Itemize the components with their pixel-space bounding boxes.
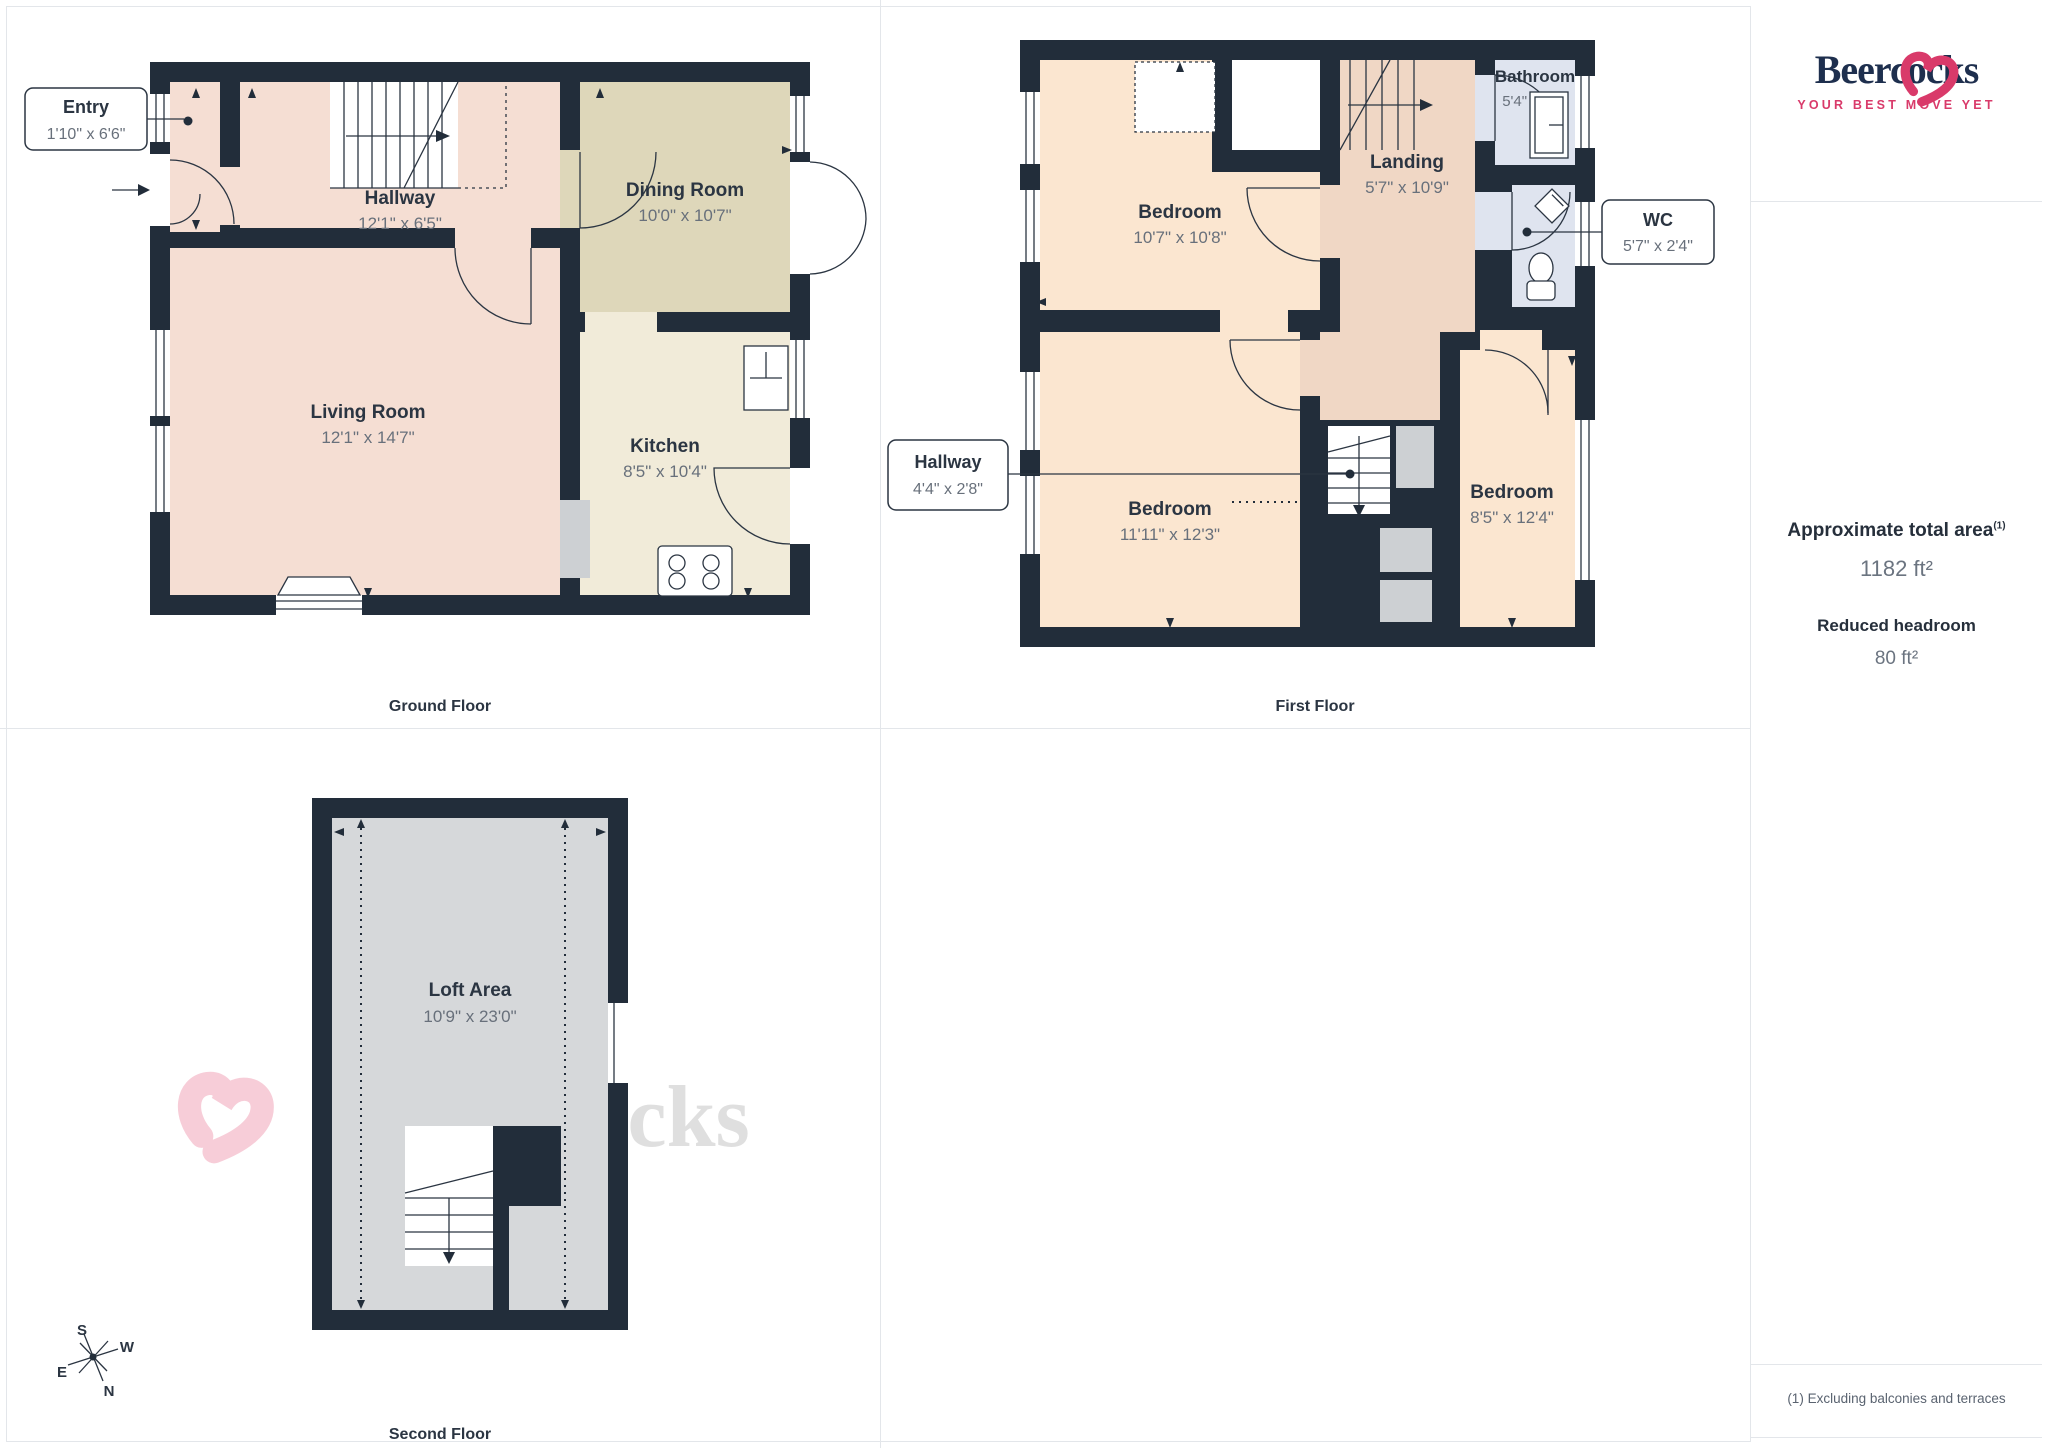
grid-divider-vertical — [880, 0, 881, 1448]
room-landing-dims: 5'7" x 10'9" — [1365, 178, 1449, 197]
reduced-headroom-label: Reduced headroom — [1751, 616, 2042, 636]
total-area-label: Approximate total area(1) — [1751, 520, 2042, 542]
callout-entry-label: Entry — [63, 97, 109, 117]
grid-divider-horizontal — [0, 728, 1750, 729]
wardrobe-dashed — [1135, 62, 1215, 132]
callout-wc-label: WC — [1643, 210, 1673, 230]
room-loft-name: Loft Area — [429, 980, 512, 1001]
first-floor-plan: Beercocks Bedroom 10'7" x 10'8" Landing … — [880, 0, 1750, 728]
caption-second-floor: Second Floor — [0, 1426, 880, 1444]
area-summary: Approximate total area(1) 1182 ft² Reduc… — [1751, 520, 2042, 1365]
second-floor-plan: Beercocks Loft Area 10'9" x 23'0" — [0, 728, 880, 1448]
room-hallway-dims: 12'1" x 6'5" — [358, 214, 442, 233]
room-bedroom3: Bedroom 8'5" x 12'4" — [1460, 330, 1575, 627]
room-bedroom2-name: Bedroom — [1128, 499, 1211, 520]
french-doors-dining — [790, 162, 866, 274]
sink-kitchen — [744, 346, 788, 410]
compass-e: E — [57, 1364, 67, 1381]
room-landing-name: Landing — [1370, 152, 1444, 173]
reduced-headroom-value: 80 ft² — [1751, 648, 2042, 670]
room-living-dims: 12'1" x 14'7" — [321, 428, 414, 447]
callout-hallway-dims: 4'4" x 2'8" — [913, 481, 983, 498]
exclusion-note: (1) Excluding balconies and terraces — [1751, 1365, 2042, 1438]
callout-entry-dims: 1'10" x 6'6" — [47, 126, 126, 143]
room-kitchen-dims: 8'5" x 10'4" — [623, 462, 707, 481]
total-area-note: (1) — [1993, 521, 2005, 532]
callout-hallway-label: Hallway — [914, 452, 981, 472]
compass: S W E N — [57, 1322, 135, 1400]
caption-first-floor: First Floor — [880, 698, 1750, 716]
room-bedroom1-name: Bedroom — [1138, 202, 1221, 223]
room-bedroom2: Bedroom 11'11" x 12'3" — [1040, 310, 1300, 627]
callout-wc-dims: 5'7" x 2'4" — [1623, 238, 1693, 255]
room-bedroom1-dims: 10'7" x 10'8" — [1133, 228, 1226, 247]
room-dining-name: Dining Room — [626, 180, 744, 201]
room-living: Living Room 12'1" x 14'7" — [170, 228, 560, 595]
ground-floor-plan: Beercocks Hallway 12'1" x 6'5" Dining Ro… — [0, 0, 880, 728]
compass-s: S — [77, 1322, 87, 1339]
caption-ground-floor: Ground Floor — [0, 698, 880, 716]
room-bedroom3-name: Bedroom — [1470, 482, 1553, 503]
info-panel: Beercocks YOUR BEST MOVE YET Approximate… — [1750, 6, 2042, 1442]
room-kitchen-name: Kitchen — [630, 436, 700, 457]
hob-icon — [658, 546, 732, 596]
appliance-kitchen — [560, 500, 590, 578]
reduced-headroom-legend: Reduced headroom Below 5 ft — [1751, 1438, 2042, 1448]
shower-icon — [1530, 92, 1568, 158]
toilet-icon — [1527, 253, 1555, 300]
room-bedroom3-dims: 8'5" x 12'4" — [1470, 508, 1554, 527]
room-hallway-name: Hallway — [365, 188, 436, 209]
compass-w: W — [120, 1339, 135, 1356]
total-area-value: 1182 ft² — [1751, 556, 2042, 582]
room-hallway-first — [1300, 332, 1440, 420]
room-bedroom2-dims: 11'11" x 12'3" — [1120, 525, 1220, 544]
room-loft-dims: 10'9" x 23'0" — [423, 1007, 516, 1026]
loft-window — [608, 1003, 628, 1083]
compass-n: N — [104, 1383, 115, 1400]
room-dining: Dining Room 10'0" x 10'7" — [560, 82, 790, 312]
floorplan-page: Beercocks Hallway 12'1" x 6'5" Dining Ro… — [0, 0, 2048, 1448]
brand-logo: Beercocks YOUR BEST MOVE YET — [1751, 6, 2042, 202]
room-living-name: Living Room — [310, 402, 425, 423]
room-dining-dims: 10'0" x 10'7" — [638, 206, 731, 225]
brand-heart-icon — [1897, 46, 1967, 108]
